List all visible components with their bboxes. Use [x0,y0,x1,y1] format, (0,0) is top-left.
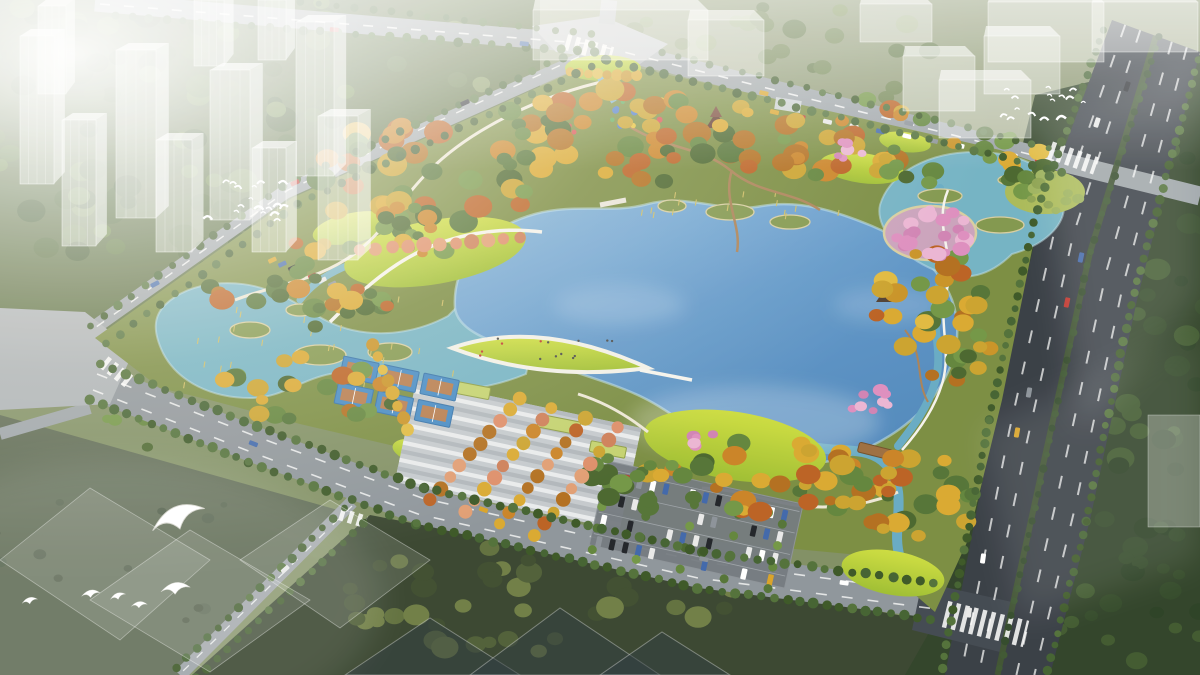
scene-canvas [0,0,1200,675]
aerial-park-rendering [0,0,1200,675]
atmospheric-haze [0,0,1200,675]
